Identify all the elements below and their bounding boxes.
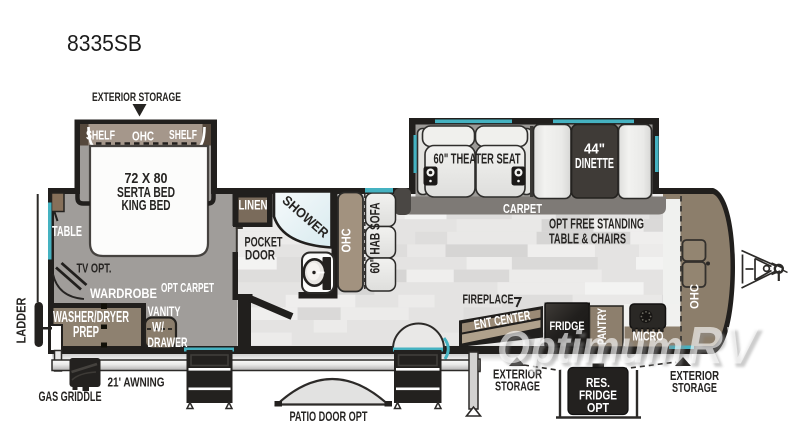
svg-text:WARDROBE: WARDROBE (90, 286, 157, 301)
svg-text:OHC: OHC (690, 284, 702, 309)
svg-text:KING BED: KING BED (122, 197, 171, 214)
svg-text:SHELF: SHELF (169, 127, 197, 142)
svg-text:RV: RV (687, 317, 760, 376)
svg-text:STORAGE: STORAGE (495, 379, 540, 394)
svg-text:8335SB: 8335SB (67, 30, 142, 56)
svg-text:Optimum: Optimum (497, 322, 683, 373)
svg-text:EXTERIOR STORAGE: EXTERIOR STORAGE (92, 92, 181, 104)
svg-text:GAS GRIDDLE: GAS GRIDDLE (39, 388, 102, 404)
svg-text:60" THEATER SEAT: 60" THEATER SEAT (434, 151, 521, 168)
svg-text:STORAGE: STORAGE (672, 380, 717, 395)
svg-text:PATIO DOOR OPT: PATIO DOOR OPT (290, 408, 368, 424)
svg-text:LINEN: LINEN (239, 197, 268, 213)
svg-text:VANITY: VANITY (148, 303, 181, 319)
svg-text:OPT CARPET: OPT CARPET (161, 281, 214, 295)
svg-text:CARPET: CARPET (503, 201, 542, 216)
svg-text:OHC: OHC (132, 130, 154, 144)
svg-text:DRAWER: DRAWER (148, 334, 188, 350)
svg-text:PREP: PREP (73, 324, 99, 341)
svg-text:W/: W/ (152, 319, 164, 335)
svg-text:TABLE & CHAIRS: TABLE & CHAIRS (549, 231, 626, 248)
svg-text:TV OPT.: TV OPT. (77, 261, 112, 276)
svg-text:60" HAB SOFA: 60" HAB SOFA (368, 202, 383, 273)
svg-text:FIREPLACE: FIREPLACE (463, 293, 514, 307)
svg-text:21' AWNING: 21' AWNING (108, 375, 165, 390)
svg-text:LADDER: LADDER (15, 298, 29, 344)
svg-text:OHC: OHC (340, 229, 354, 253)
svg-text:DOOR: DOOR (245, 247, 275, 263)
svg-text:DINETTE: DINETTE (575, 156, 614, 172)
svg-text:SHELF: SHELF (86, 128, 115, 143)
svg-text:OPT: OPT (587, 401, 609, 415)
svg-text:TABLE: TABLE (52, 224, 82, 240)
